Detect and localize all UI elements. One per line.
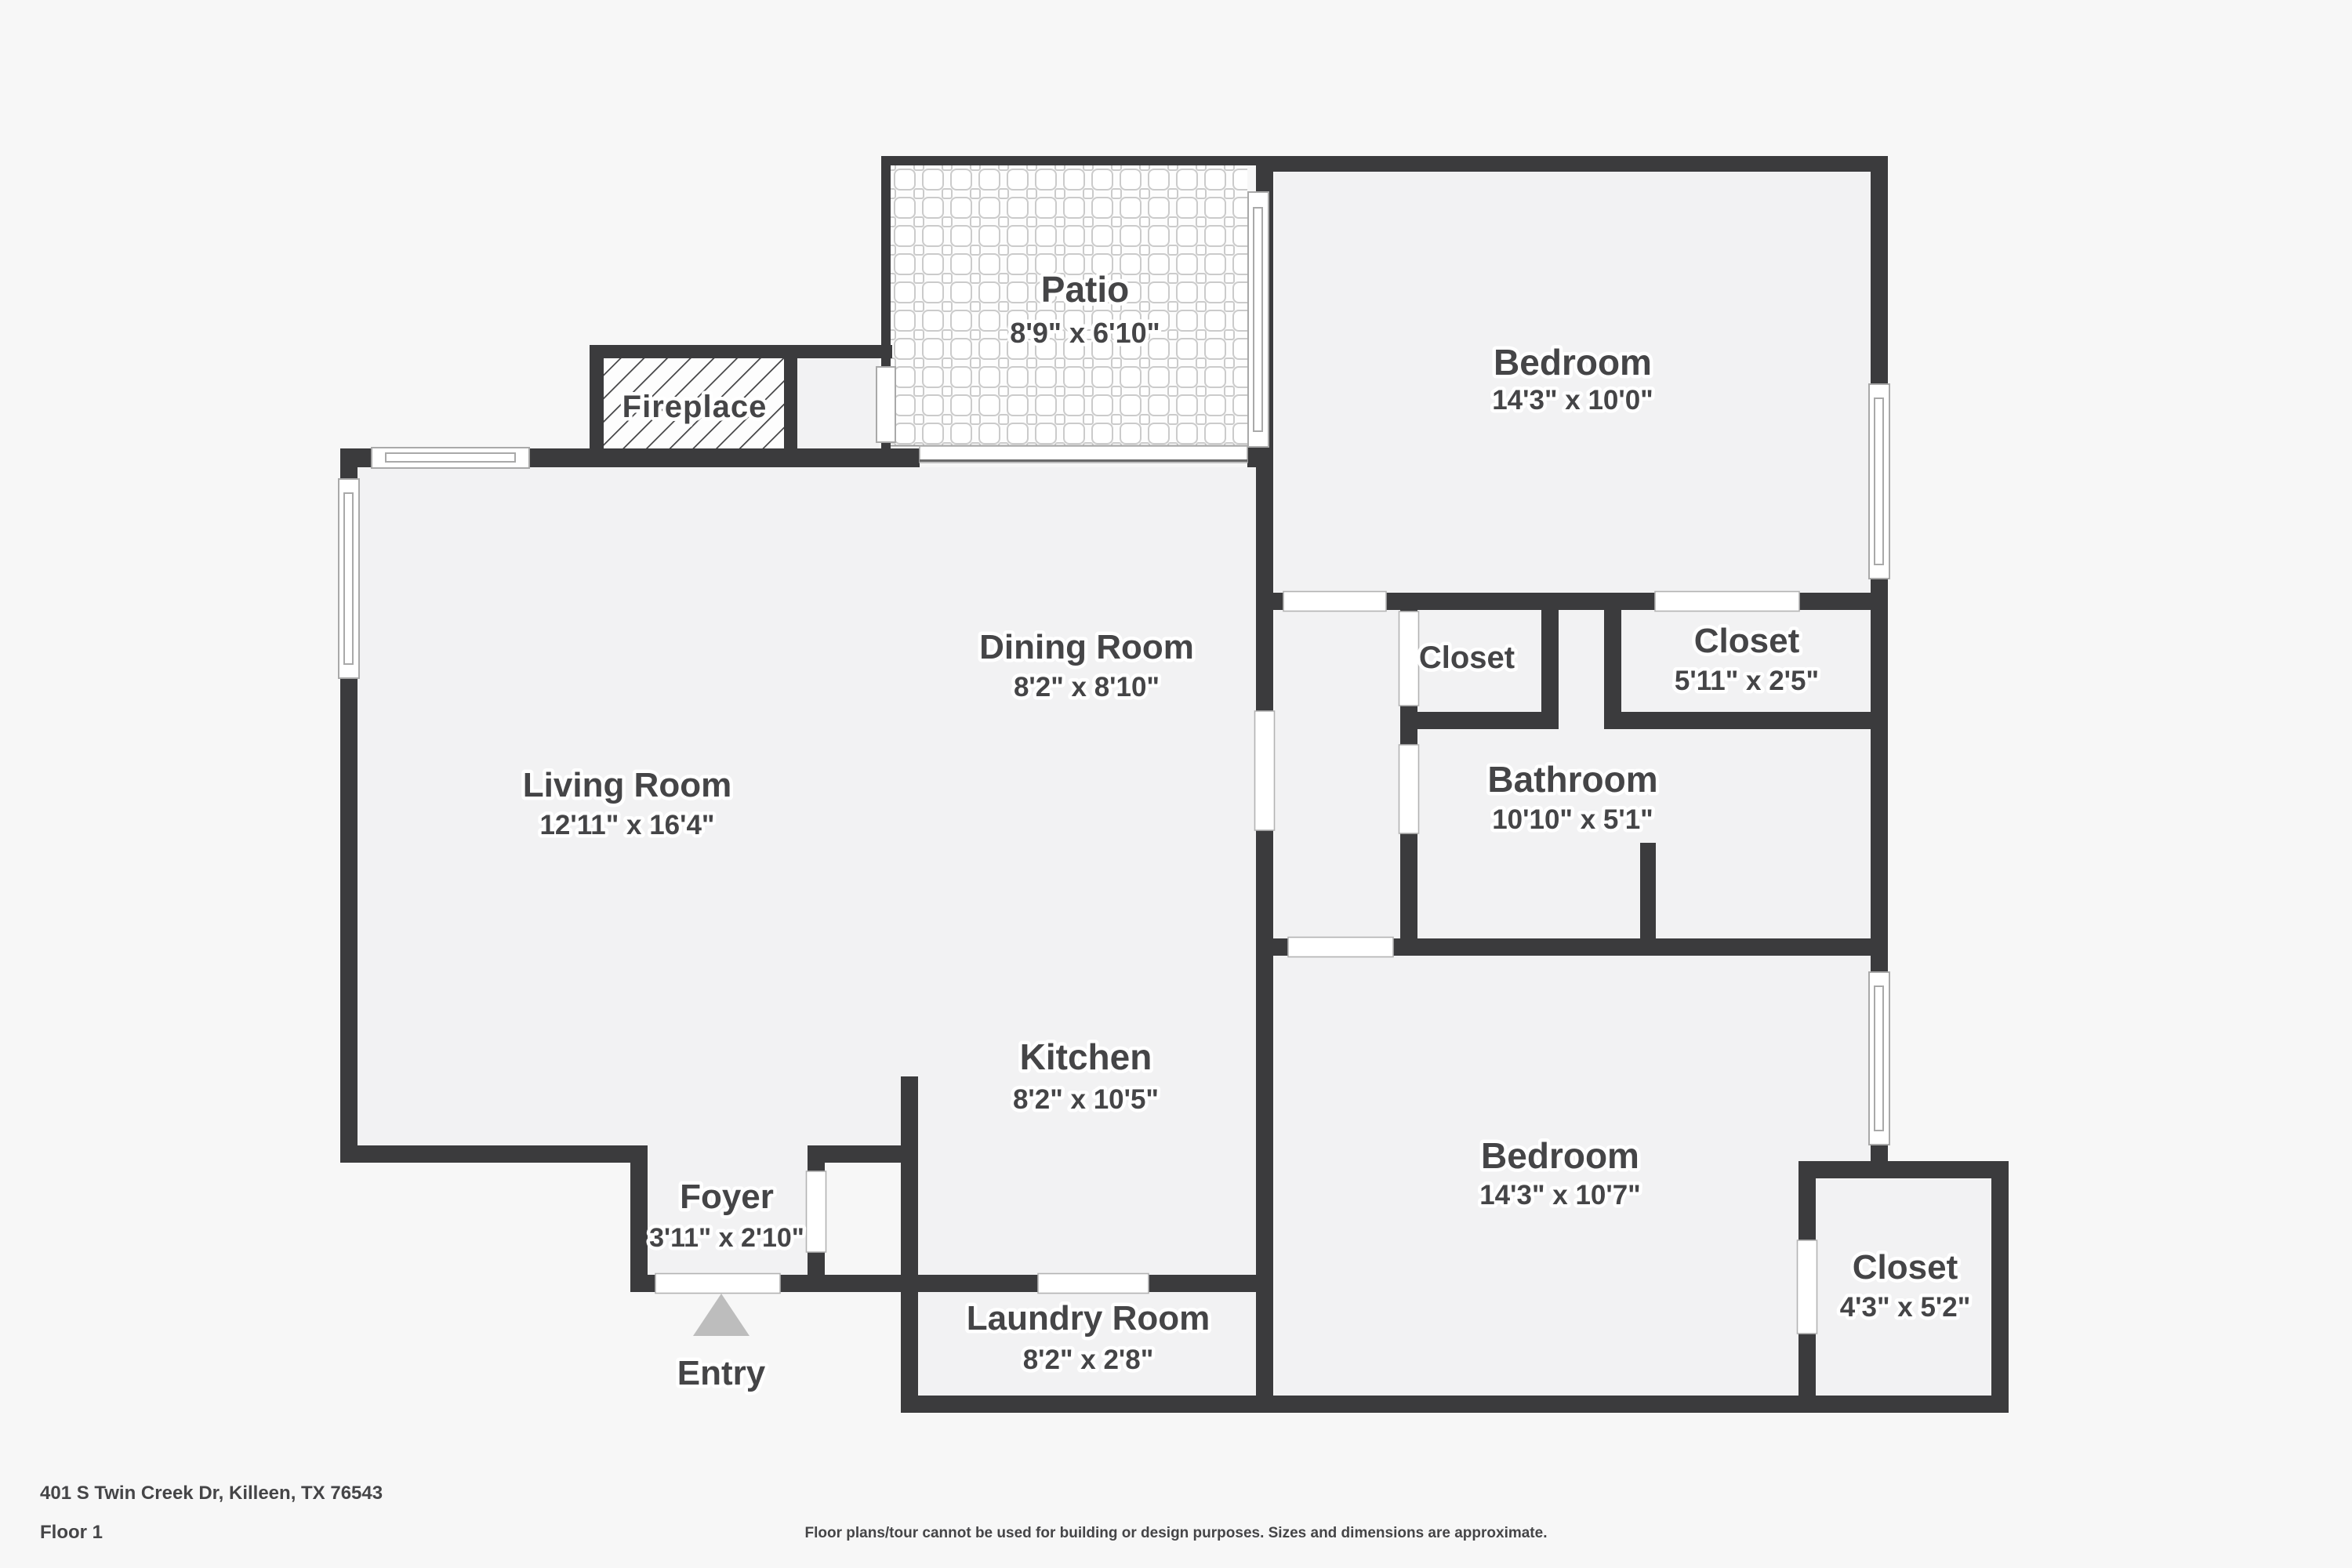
svg-text:Kitchen: Kitchen	[1020, 1036, 1152, 1077]
svg-text:8'9" x 6'10": 8'9" x 6'10"	[1010, 317, 1160, 349]
svg-text:Bathroom: Bathroom	[1487, 759, 1657, 800]
svg-text:Fireplace: Fireplace	[622, 390, 768, 424]
svg-text:Closet: Closet	[1853, 1248, 1958, 1287]
svg-text:Bedroom: Bedroom	[1494, 342, 1652, 383]
svg-text:Closet: Closet	[1419, 641, 1515, 675]
svg-text:14'3" x 10'0": 14'3" x 10'0"	[1492, 385, 1653, 416]
svg-text:Closet: Closet	[1694, 622, 1800, 660]
svg-text:Entry: Entry	[677, 1354, 766, 1392]
svg-text:Bedroom: Bedroom	[1481, 1135, 1639, 1176]
svg-text:10'10" x 5'1": 10'10" x 5'1"	[1492, 804, 1653, 835]
svg-text:14'3" x 10'7": 14'3" x 10'7"	[1479, 1180, 1641, 1210]
svg-text:5'11" x 2'5": 5'11" x 2'5"	[1675, 666, 1819, 696]
svg-text:Laundry Room: Laundry Room	[967, 1299, 1210, 1338]
svg-text:8'2" x 2'8": 8'2" x 2'8"	[1023, 1345, 1154, 1375]
svg-text:Patio: Patio	[1041, 269, 1129, 310]
svg-text:Living Room: Living Room	[523, 766, 731, 804]
svg-text:Floor plans/tour cannot be use: Floor plans/tour cannot be used for buil…	[805, 1525, 1548, 1541]
svg-text:12'11" x 16'4": 12'11" x 16'4"	[539, 810, 714, 840]
svg-text:8'2" x 10'5": 8'2" x 10'5"	[1013, 1084, 1159, 1115]
svg-text:4'3" x 5'2": 4'3" x 5'2"	[1840, 1292, 1971, 1323]
svg-text:Floor 1: Floor 1	[40, 1522, 103, 1543]
svg-text:Foyer: Foyer	[680, 1178, 774, 1216]
svg-text:3'11" x 2'10": 3'11" x 2'10"	[649, 1223, 804, 1253]
svg-text:Dining Room: Dining Room	[979, 628, 1194, 666]
svg-text:401 S Twin Creek Dr, Killeen,: 401 S Twin Creek Dr, Killeen, TX 76543	[40, 1483, 383, 1504]
svg-text:8'2" x 8'10": 8'2" x 8'10"	[1014, 672, 1160, 702]
